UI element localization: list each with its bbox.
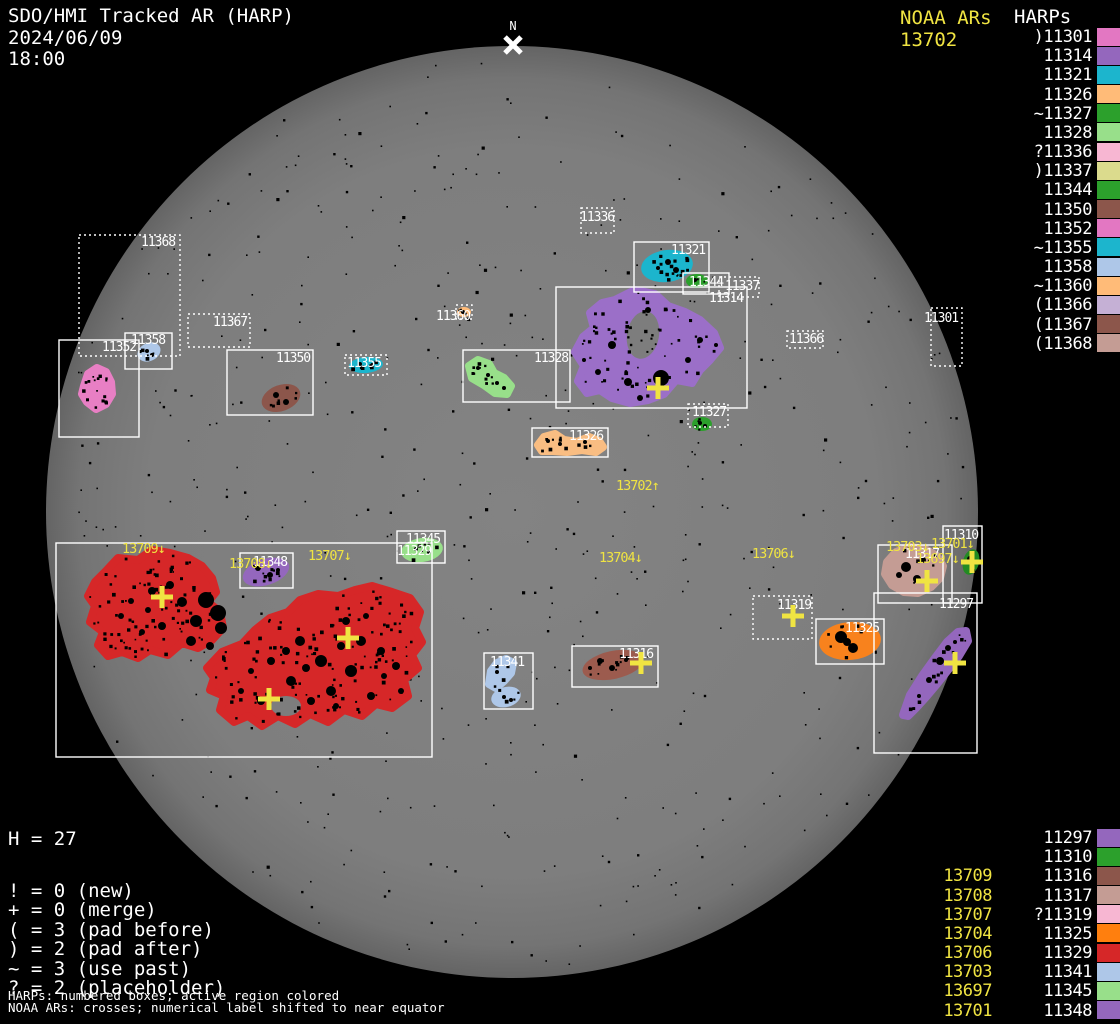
harp-list-item: (11367 (890, 315, 1120, 334)
solar-disk (46, 46, 978, 978)
harp-color-swatch (1097, 143, 1120, 161)
harp-number-label: )11337 (1034, 161, 1092, 181)
harp-color-swatch (1097, 85, 1120, 103)
harp-number-label: ~11355 (1034, 238, 1092, 258)
harp-list-item: 1370411325 (850, 924, 1120, 943)
harp-list-item: 11321 (890, 65, 1120, 84)
harp-color-swatch (1097, 982, 1120, 1000)
harp-list-item: 11328 (890, 123, 1120, 142)
harp-box-label-11341: 11341 (490, 655, 524, 670)
harp-number-label: ~11327 (1034, 104, 1092, 124)
harp-number-label: (11368 (1034, 334, 1092, 354)
harp-list-bottom: 11297113101370911316137081131713707?1131… (850, 828, 1120, 1020)
harp-box-label-11327: 11327 (692, 405, 726, 420)
noaa-label-13707: 13707↓ (308, 548, 351, 564)
harp-number-label: )11301 (1034, 27, 1092, 47)
harp-box-label-11316: 11316 (619, 647, 653, 662)
harp-list-item: ~11327 (890, 104, 1120, 123)
harp-list-item: 11310 (850, 847, 1120, 866)
harp-box-label-11355: 11355 (347, 356, 381, 371)
harp-color-swatch (1097, 219, 1120, 237)
harp-list-item: 1370311341 (850, 962, 1120, 981)
plot-header: SDO/HMI Tracked AR (HARP)2024/06/0918:00 (8, 6, 294, 71)
harp-box-label-11367: 11367 (213, 315, 247, 330)
harp-list-item: )11301 (890, 27, 1120, 46)
harp-color-swatch (1097, 334, 1120, 352)
harp-list-item: 11344 (890, 180, 1120, 199)
noaa-ar-number-label: 13706 (943, 943, 992, 963)
harps-list-title: HARPs (1014, 6, 1071, 28)
plot-date: 2024/06/09 (8, 27, 122, 49)
harp-color-swatch (1097, 47, 1120, 65)
noaa-ar-number-label: 13701 (943, 1001, 992, 1021)
harp-list-item: 1370911316 (850, 866, 1120, 885)
harp-color-swatch (1097, 905, 1120, 923)
noaa-ar-number-label: 13704 (943, 924, 992, 944)
harp-number-label: 11316 (1043, 866, 1092, 886)
flag-legend-line: + = 0 (merge) (8, 901, 225, 920)
harp-color-swatch (1097, 162, 1120, 180)
harp-color-swatch (1097, 829, 1120, 847)
flag-legend-line: ) = 2 (pad after) (8, 940, 225, 959)
harp-color-swatch (1097, 238, 1120, 256)
harp-box-label-11329: 11329 (397, 544, 431, 559)
harp-number-label: 11329 (1043, 943, 1092, 963)
harp-list-item: ~11355 (890, 238, 1120, 257)
noaa-label-13702: 13702↑ (616, 478, 659, 494)
harp-box-label-11314: 11314 (709, 291, 744, 306)
harp-count: H = 27 (8, 828, 77, 850)
harp-color-swatch (1097, 181, 1120, 199)
plot-time: 18:00 (8, 48, 65, 70)
harp-list-item: 11358 (890, 257, 1120, 276)
active-region-11352 (82, 368, 112, 409)
harp-box-label-11368: 11368 (141, 235, 175, 250)
harp-number-label: 11358 (1043, 257, 1092, 277)
harp-list-item: 11314 (890, 46, 1120, 65)
harp-number-label: 11345 (1043, 981, 1092, 1001)
noaa-ar-number-label: 13697 (943, 981, 992, 1001)
harp-box-label-11297: 11297 (939, 597, 973, 612)
footnote-noaa: NOAA ARs: crosses; numerical label shift… (8, 1000, 445, 1015)
harp-number-label: (11366 (1034, 295, 1092, 315)
harp-box-label-11321: 11321 (671, 243, 705, 258)
harp-number-label: 11317 (1043, 886, 1092, 906)
harp-color-swatch (1097, 867, 1120, 885)
harp-number-label: 11341 (1043, 962, 1092, 982)
harp-color-swatch (1097, 963, 1120, 981)
harp-number-label: 11344 (1043, 180, 1092, 200)
harp-list-item: 11352 (890, 219, 1120, 238)
harp-color-swatch (1097, 848, 1120, 866)
harp-color-swatch (1097, 104, 1120, 122)
harp-color-swatch (1097, 123, 1120, 141)
noaa-label-13701: 13701↓ (931, 536, 974, 552)
harp-box-label-11326: 11326 (569, 429, 603, 444)
noaa-label-13706: 13706↓ (752, 546, 795, 562)
harp-number-label: (11367 (1034, 315, 1092, 335)
noaa-label-13697: 13697↓ (916, 551, 959, 567)
harp-number-label: ?11319 (1034, 905, 1092, 925)
active-region-11329a (88, 550, 227, 658)
harp-color-swatch (1097, 944, 1120, 962)
harp-list-item: (11366 (890, 295, 1120, 314)
harp-number-label: ~11360 (1034, 276, 1092, 296)
harp-list-item: 11297 (850, 828, 1120, 847)
harp-list-item: ~11360 (890, 276, 1120, 295)
harp-box-label-11360: 11360 (436, 309, 470, 324)
harp-box-label-11366: 11366 (789, 332, 823, 347)
harp-list-item: 11326 (890, 85, 1120, 104)
noaa-ar-number-label: 13707 (943, 905, 992, 925)
harp-list-item: 13707?11319 (850, 905, 1120, 924)
harp-color-swatch (1097, 258, 1120, 276)
noaa-label-13708: 13708↓ (229, 556, 272, 572)
harp-color-swatch (1097, 28, 1120, 46)
harp-number-label: ?11336 (1034, 142, 1092, 162)
harp-list-item: )11337 (890, 161, 1120, 180)
harp-number-label: 11352 (1043, 219, 1092, 239)
harp-list-item: ?11336 (890, 142, 1120, 161)
harp-color-swatch (1097, 66, 1120, 84)
harp-number-label: 11297 (1043, 828, 1092, 848)
harp-tracking-plot: 1136811352113581136711350113551133611321… (0, 0, 1120, 1024)
harp-number-label: 11314 (1043, 46, 1092, 66)
noaa-label-13704: 13704↓ (599, 550, 642, 566)
harp-color-swatch (1097, 296, 1120, 314)
harp-color-swatch (1097, 1001, 1120, 1019)
harp-list-item: (11368 (890, 334, 1120, 353)
north-label: N (509, 19, 516, 33)
harp-color-swatch (1097, 315, 1120, 333)
harp-list-item: 1369711345 (850, 981, 1120, 1000)
plot-title: SDO/HMI Tracked AR (HARP) (8, 5, 294, 27)
harp-color-swatch (1097, 200, 1120, 218)
harp-number-label: 11328 (1043, 123, 1092, 143)
harp-number-label: 11348 (1043, 1001, 1092, 1021)
harp-list-top: )11301113141132111326~1132711328?11336)1… (890, 27, 1120, 353)
harp-number-label: 11310 (1043, 847, 1092, 867)
flag-legend: ! = 0 (new)+ = 0 (merge)( = 3 (pad befor… (8, 882, 225, 998)
noaa-ars-title: NOAA ARs (900, 7, 992, 29)
noaa-ar-number-label: 13703 (943, 962, 992, 982)
noaa-ar-number-label: 13709 (943, 866, 992, 886)
harp-box-label-11328: 11328 (534, 351, 568, 366)
harp-color-swatch (1097, 924, 1120, 942)
harp-box-label-11336: 11336 (580, 210, 614, 225)
footnotes: HARPs: numbered boxes; active region col… (8, 990, 445, 1015)
harp-number-label: 11326 (1043, 85, 1092, 105)
noaa-ar-number-label: 13708 (943, 886, 992, 906)
harp-number-label: 11325 (1043, 924, 1092, 944)
harp-color-swatch (1097, 277, 1120, 295)
harp-list-item: 1370611329 (850, 943, 1120, 962)
north-pole-marker: N (505, 19, 521, 53)
noaa-label-13709: 13709↓ (122, 541, 165, 557)
harp-color-swatch (1097, 886, 1120, 904)
harp-box-label-11358: 11358 (131, 333, 165, 348)
harp-box-label-11350: 11350 (276, 351, 310, 366)
harp-list-item: 11350 (890, 200, 1120, 219)
harp-number-label: 11321 (1043, 65, 1092, 85)
harp-list-item: 1370811317 (850, 886, 1120, 905)
harp-number-label: 11350 (1043, 200, 1092, 220)
harp-list-item: 1370111348 (850, 1001, 1120, 1020)
